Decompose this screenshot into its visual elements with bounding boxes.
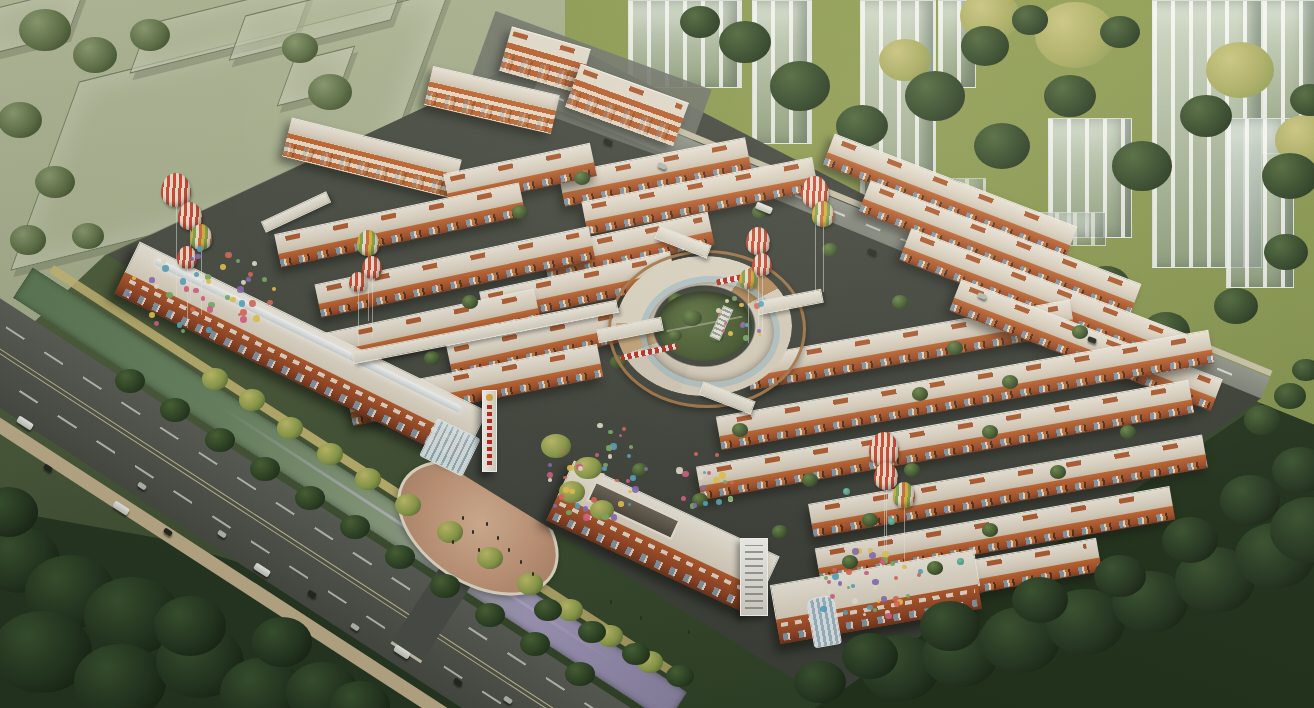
balloon-cluster-dot [867,605,872,610]
balloon-cluster-dot [184,286,190,292]
tree [252,617,312,666]
hot-air-balloon [869,432,899,467]
balloon-cluster-dot [703,501,708,506]
balloon-cluster-dot [851,584,855,588]
tree [1214,288,1258,324]
pedestrian [532,572,534,576]
balloon-cluster-dot [583,506,589,512]
hot-air-balloon [357,230,379,255]
tree [462,295,478,308]
tree [961,26,1009,65]
tree [719,21,771,64]
architectural-rendering: Bird's-eye 3D architectural rendering of… [0,0,1314,708]
pedestrian [640,616,642,620]
tree [520,632,550,657]
balloon-cluster-dot [567,465,574,472]
tree [1050,465,1066,478]
balloon-cluster-dot [267,300,273,306]
balloon-cluster-dot [207,306,213,312]
balloon-cluster-dot [832,573,839,580]
tree [541,434,571,459]
tree [974,123,1030,169]
tree [277,417,303,438]
balloon-cluster-dot [618,501,623,506]
pedestrian [478,548,480,552]
tree [892,295,908,308]
tree [72,223,104,249]
tree [1002,375,1018,388]
tree [666,665,694,688]
balloon-cluster-dot [132,276,136,280]
pedestrian [452,540,454,544]
balloon-cluster-dot [249,300,256,307]
tree [1262,153,1314,199]
balloon-cluster-dot [868,548,873,553]
tree [574,171,590,184]
tree [1112,141,1172,190]
balloon-cluster-dot [237,286,244,293]
balloon-cluster-dot [622,427,626,431]
tree [1180,95,1232,138]
tree [982,425,998,438]
balloon-cluster-dot [252,261,257,266]
tree [0,102,42,138]
pedestrian [520,560,522,564]
tree [475,603,505,628]
parasol [888,518,895,525]
balloon-cluster-dot [127,293,131,297]
balloon-cluster-dot [820,606,827,613]
balloon-cluster-dot [240,309,247,316]
balloon-cluster-dot [615,479,618,482]
pedestrian [610,600,612,604]
tree [1264,234,1308,270]
tree [160,398,190,423]
balloon-cluster-dot [869,552,876,559]
balloon-cluster-dot [589,485,593,489]
balloon-cluster-dot [890,561,895,566]
balloon-cluster-dot [745,323,749,327]
tree [477,547,503,568]
tree [1120,425,1136,438]
tree [565,662,595,687]
tree [385,545,415,570]
balloon-cluster-dot [881,596,886,601]
balloon-cluster-dot [570,489,575,494]
hot-air-balloon [893,482,915,507]
hot-air-balloon [177,246,197,269]
balloon-cluster-dot [201,296,205,300]
hot-air-balloon [812,201,834,226]
balloon-cluster-dot [149,312,155,318]
tree [912,387,928,400]
balloon-cluster-dot [600,473,605,478]
hot-air-balloon [349,272,367,293]
balloon-cluster-dot [216,293,220,297]
tree [1100,16,1140,49]
parasol [957,558,964,565]
balloon-cluster-dot [611,514,617,520]
tree [517,573,543,594]
tree [282,33,318,63]
tree [1012,577,1068,623]
tree [437,521,463,542]
balloon-cluster-dot [239,300,246,307]
tree [512,205,528,218]
balloon-cluster-dot [595,453,599,457]
tree [308,74,352,110]
pedestrian [497,536,499,540]
pedestrian [508,548,510,552]
tree [904,463,920,476]
balloon-cluster-dot [193,288,199,294]
tree [1162,517,1218,563]
balloon-cluster-dot [832,568,837,573]
tree [842,633,898,679]
hot-air-balloon [874,462,898,490]
balloon-cluster-dot [602,514,608,520]
tree [430,574,460,599]
balloon-cluster-dot [240,316,247,323]
balloon-cluster-dot [827,589,831,593]
tree [73,37,117,73]
tree [1072,325,1088,338]
balloon-cluster-dot [547,472,553,478]
balloon-cluster-dot [904,562,908,566]
tree [920,601,980,650]
tree [947,341,963,354]
tree [74,644,166,708]
balloon-cluster-dot [843,610,847,614]
pedestrian [472,530,474,534]
tree [680,6,720,39]
balloon-cluster-dot [206,327,212,333]
tree [130,19,170,52]
tree [1292,359,1314,382]
balloon-cluster-dot [606,445,612,451]
balloon-cluster-dot [253,315,260,322]
balloon-cluster-dot [877,599,880,602]
tree [395,494,421,515]
balloon-cluster-dot [597,423,602,428]
gold-emblem-icon [486,394,493,401]
balloon-cluster-dot [177,322,183,328]
balloon-cluster-dot [195,254,200,259]
balloon-cluster-dot [846,569,852,575]
tree [355,468,381,489]
balloon-cluster-dot [553,504,556,507]
tree [295,486,325,511]
balloon-cluster-dot [681,496,686,501]
balloon-cluster-dot [262,277,267,282]
tree [1044,75,1096,118]
tree [1206,42,1274,98]
balloon-cluster-dot [693,503,697,507]
tree [10,225,46,255]
balloon-cluster-dot [272,287,276,291]
courtyard-tree [668,330,682,341]
tree [340,515,370,540]
balloon-cluster-dot [852,548,859,555]
balloon-cluster-dot [181,329,185,333]
balloon-cluster-dot [180,278,187,285]
tree [982,523,998,536]
tree [862,513,878,526]
balloon-cluster-dot [626,479,630,483]
balloon-cluster-dot [608,430,612,434]
balloon-cluster-dot [830,594,835,599]
outdoor-stair-tower [740,538,768,616]
pedestrian [688,630,690,634]
tree [772,525,788,538]
balloon-cluster-dot [632,486,639,493]
tree [732,423,748,436]
balloon-cluster-dot [894,576,898,580]
pedestrian [486,522,488,526]
balloon-cluster-dot [591,497,597,503]
tree [802,473,818,486]
tree [239,389,265,410]
balloon-cluster-dot [548,478,551,481]
balloon-cluster-dot [902,565,907,570]
tree [905,71,965,120]
balloon-cluster-dot [149,277,155,283]
balloon-cluster-dot [644,467,648,471]
hot-air-balloon [752,253,772,276]
balloon-cluster-dot [202,280,205,283]
tree [1244,405,1280,435]
tree [35,166,75,199]
balloon-cluster-dot [872,579,878,585]
balloon-cluster-dot [559,494,564,499]
balloon-cluster-dot [917,573,921,577]
balloon-cluster-dot [628,490,631,493]
tree [927,561,943,574]
balloon-cluster-dot [246,277,250,281]
tree [770,61,830,110]
tree [205,428,235,453]
balloon-cluster-dot [713,477,719,483]
tree [19,9,71,52]
balloon-cluster-dot [154,321,159,326]
balloon-cluster-dot [575,503,581,509]
sign-pylon [482,390,497,472]
balloon-cluster-dot [563,476,566,479]
balloon-cluster-dot [723,480,726,483]
tree [154,596,226,655]
balloon-cluster-dot [629,445,633,449]
balloon-cluster-dot [838,581,842,585]
hot-air-balloon [746,227,770,255]
balloon-cluster-dot [758,333,762,337]
balloon-cluster-dot [722,329,725,332]
tree [115,369,145,394]
courtyard-tree [682,310,702,326]
tree [317,443,343,464]
balloon-cluster-dot [694,452,698,456]
tree [842,555,858,568]
tree [794,661,846,704]
balloon-cluster-dot [682,471,689,478]
tree [1220,475,1280,524]
tree [202,368,228,389]
tree [1094,555,1146,598]
balloon-cluster-dot [728,331,733,336]
balloon-cluster-dot [162,265,169,272]
balloon-cluster-dot [608,454,612,458]
balloon-cluster-dot [583,514,590,521]
tree [1274,383,1306,409]
balloon-cluster-dot [739,303,743,307]
balloon-cluster-dot [154,284,159,289]
hot-air-balloon [362,256,382,279]
balloon-cluster-dot [719,472,725,478]
parasol [843,488,850,495]
balloon-cluster-dot [873,608,876,611]
balloon-cluster-dot [230,297,235,302]
tree [1012,5,1048,35]
balloon-cluster-dot [676,467,683,474]
balloon-cluster-dot [619,434,622,437]
tree [822,243,838,256]
pedestrian [462,516,464,520]
balloon-cluster-dot [225,252,231,258]
tree [250,457,280,482]
balloon-cluster-dot [241,280,246,285]
balloon-cluster-dot [225,295,229,299]
hot-air-balloon [739,269,757,290]
tree [424,351,440,364]
